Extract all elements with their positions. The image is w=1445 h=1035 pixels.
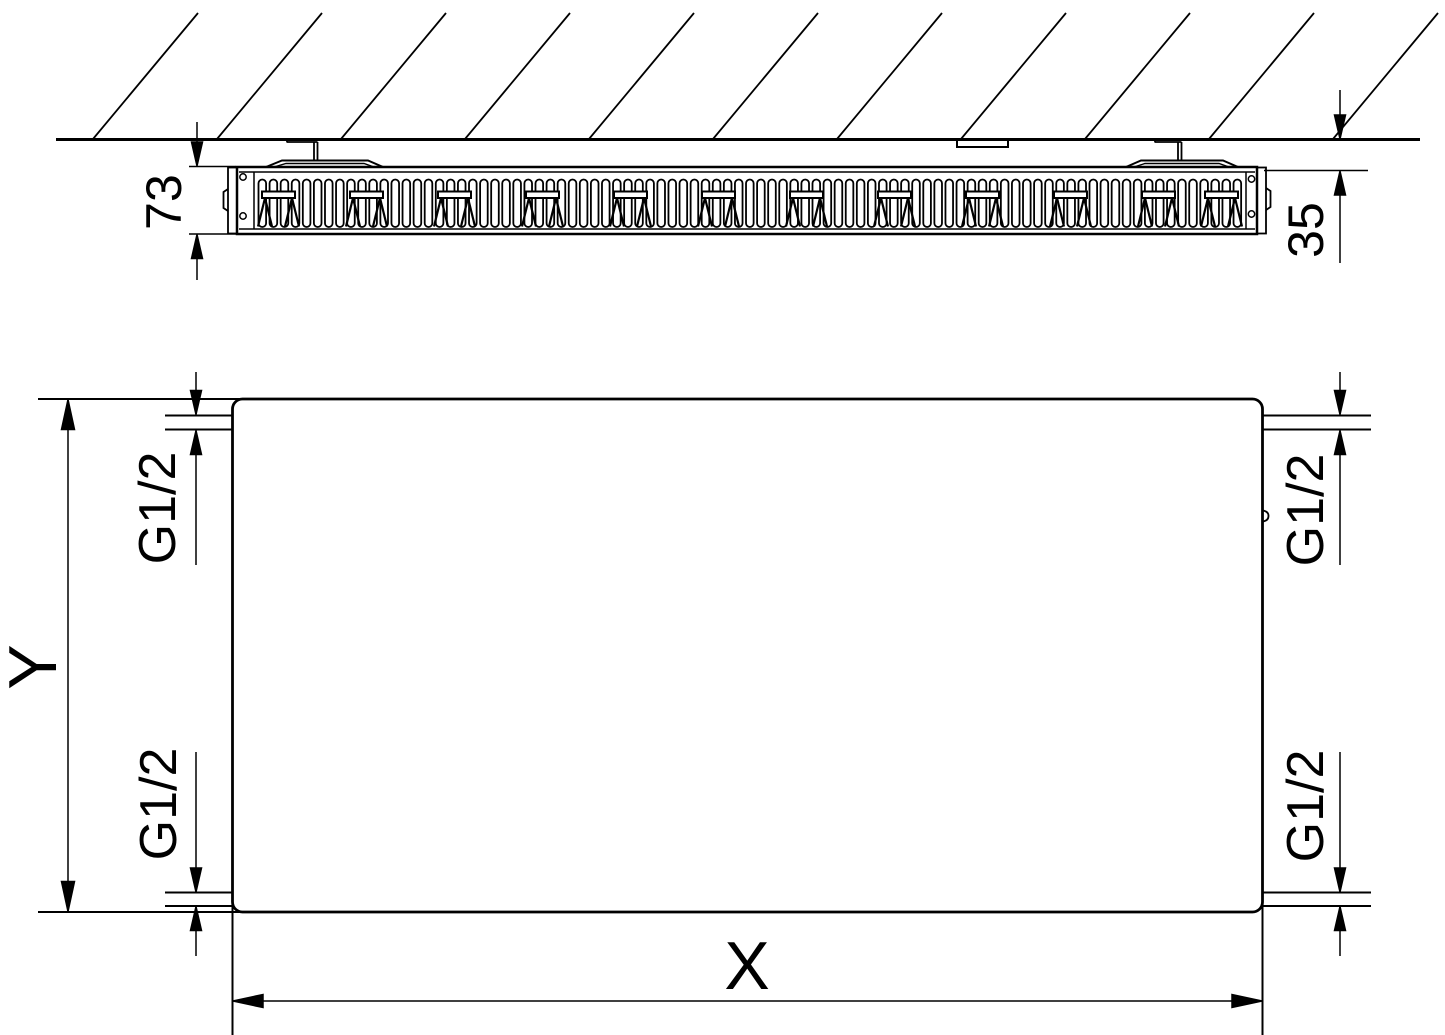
thread-label-bottom-right: G1/2 <box>1277 750 1335 863</box>
radiator-technical-drawing: 73 35 G1/2 <box>0 0 1445 1035</box>
plug-left-bottom <box>240 213 246 219</box>
thread-label-top-right: G1/2 <box>1277 454 1335 567</box>
dimension-thread-top-left: G1/2 <box>129 372 202 565</box>
plug-right-top <box>1248 176 1254 182</box>
drawing-svg: 73 35 G1/2 <box>0 0 1445 1035</box>
end-plate-right <box>1257 168 1266 234</box>
connection-stub-top-right <box>1262 416 1371 430</box>
depth-dimension-label: 73 <box>136 174 192 230</box>
thread-label-bottom-left: G1/2 <box>130 748 188 861</box>
end-plate-left <box>228 168 237 234</box>
dimension-height-Y: Y <box>0 400 75 912</box>
plug-right-bottom <box>1248 211 1254 217</box>
dimension-thread-bottom-left: G1/2 <box>130 748 202 956</box>
dimension-width-X: X <box>233 928 1262 1008</box>
dimension-depth-73: 73 <box>136 122 236 280</box>
connection-stub-top-left <box>165 416 233 430</box>
bracket-left <box>266 140 383 168</box>
height-dimension-label: Y <box>0 644 71 689</box>
wall-distance-dimension-label: 35 <box>1278 202 1334 258</box>
wall-section <box>56 13 1445 147</box>
thread-label-top-left: G1/2 <box>129 452 187 565</box>
width-dimension-label: X <box>724 928 769 1004</box>
plug-left-top <box>240 174 246 180</box>
radiator-top-view <box>224 140 1271 235</box>
connection-stub-bottom-right <box>1262 893 1371 907</box>
front-panel-outline <box>233 399 1263 912</box>
radiator-front-view <box>38 399 1371 1035</box>
dimension-thread-bottom-right: G1/2 <box>1277 750 1346 956</box>
wall-hatching <box>93 13 1445 139</box>
dimension-thread-top-right: G1/2 <box>1277 372 1346 566</box>
connection-stub-bottom-left <box>165 893 233 907</box>
convector-fins <box>259 180 1242 228</box>
bracket-right <box>1126 140 1238 168</box>
